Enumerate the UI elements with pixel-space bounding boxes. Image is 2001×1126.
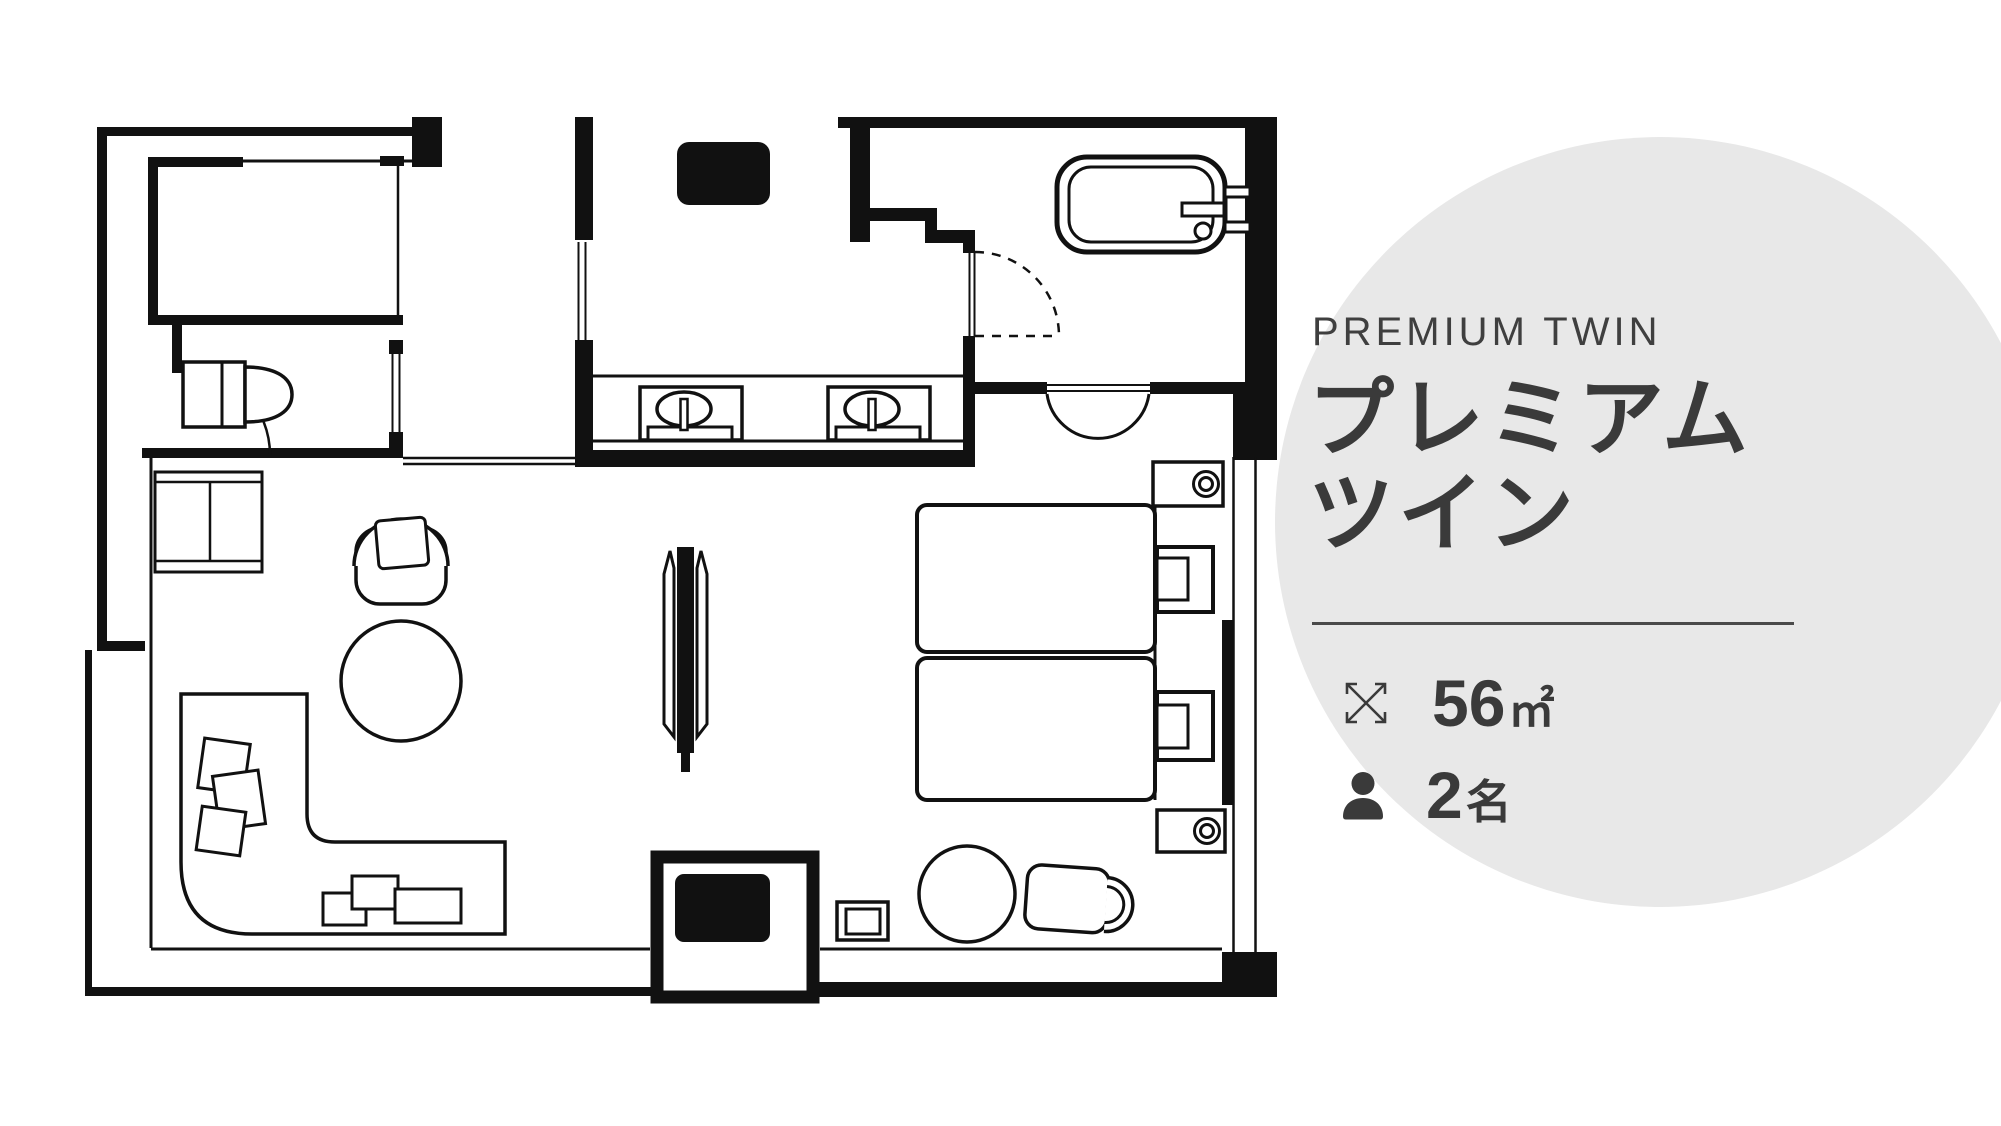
title-line-1: プレミアム — [1308, 371, 1752, 467]
info-panel: PREMIUM TWIN プレミアムツイン 56 ㎡ 2 — [0, 0, 2001, 1126]
expand-arrows-icon — [1338, 675, 1394, 731]
area-stat: 56 ㎡ — [1432, 665, 1554, 741]
area-unit: ㎡ — [1508, 674, 1554, 740]
capacity-row: 2 名 — [1338, 766, 1512, 824]
area-row: 56 ㎡ — [1338, 672, 1554, 734]
room-type-label-en: PREMIUM TWIN — [1312, 310, 1661, 355]
capacity-unit: 名 — [1466, 766, 1512, 832]
capacity-stat: 2 名 — [1426, 757, 1512, 833]
divider-line — [1312, 622, 1794, 625]
title-line-2: ツイン — [1308, 466, 1578, 562]
capacity-value: 2 — [1426, 757, 1463, 833]
room-detail-card: PREMIUM TWIN プレミアムツイン 56 ㎡ 2 — [0, 0, 2001, 1126]
room-type-title-ja: プレミアムツイン — [1308, 372, 1752, 561]
person-icon — [1338, 770, 1388, 820]
area-value: 56 — [1432, 665, 1505, 741]
